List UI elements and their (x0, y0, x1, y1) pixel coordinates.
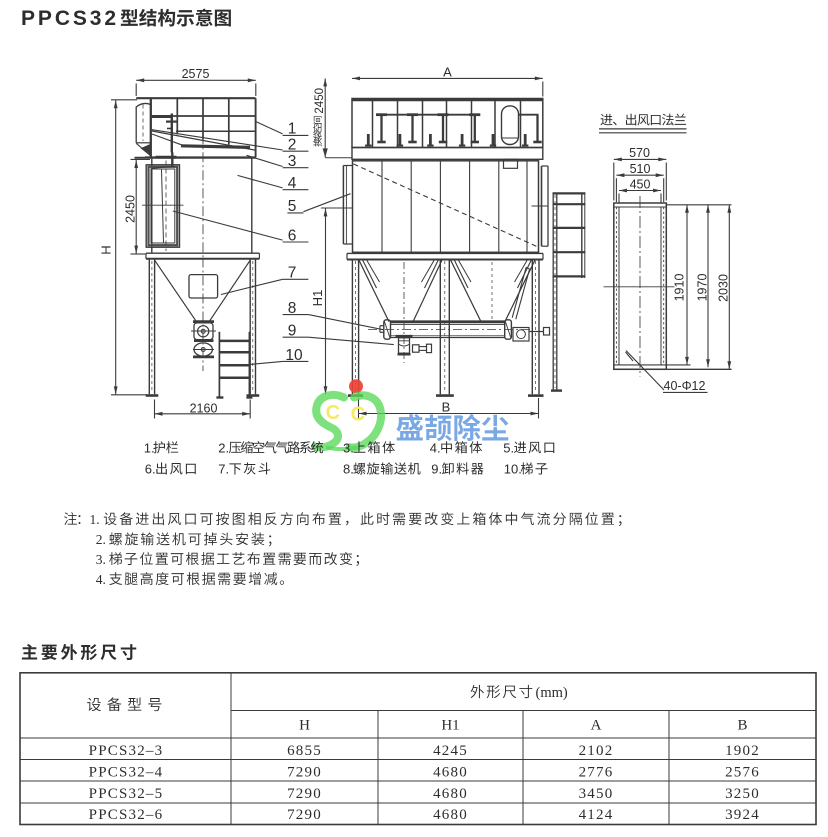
svg-text:A: A (443, 65, 452, 80)
svg-text:8.: 8. (343, 462, 354, 477)
svg-text:A: A (591, 718, 602, 734)
svg-text:1.: 1. (90, 512, 100, 527)
svg-text:B: B (442, 399, 451, 414)
svg-text:450: 450 (630, 178, 651, 192)
svg-text:B: B (737, 718, 747, 734)
svg-text:H1: H1 (310, 290, 325, 307)
svg-text:510: 510 (630, 162, 651, 176)
svg-text:4245: 4245 (433, 743, 468, 759)
svg-text:2575: 2575 (182, 67, 210, 81)
svg-text:PPCS32–5: PPCS32–5 (89, 786, 164, 802)
svg-text:PPCS32–3: PPCS32–3 (89, 743, 164, 759)
svg-text:2.: 2. (218, 440, 229, 455)
svg-text:4680: 4680 (433, 764, 468, 780)
svg-text:570: 570 (629, 146, 650, 160)
svg-text:9.: 9. (431, 462, 442, 477)
svg-text:7290: 7290 (287, 764, 322, 780)
svg-text:5.: 5. (503, 440, 514, 455)
svg-text:7290: 7290 (287, 807, 322, 823)
svg-text:2776: 2776 (579, 764, 614, 780)
svg-text:40-Φ12: 40-Φ12 (664, 379, 706, 393)
svg-text:H1: H1 (441, 718, 459, 734)
svg-text:2450: 2450 (314, 88, 326, 114)
svg-text:(mm): (mm) (536, 685, 568, 701)
svg-text:6855: 6855 (287, 743, 322, 759)
svg-text:4680: 4680 (433, 786, 468, 802)
svg-text:2576: 2576 (725, 764, 760, 780)
svg-text:C: C (326, 402, 340, 424)
svg-text:3924: 3924 (725, 807, 760, 823)
svg-text:2450: 2450 (123, 195, 137, 223)
svg-text:3250: 3250 (725, 786, 760, 802)
svg-text:1910: 1910 (672, 274, 686, 302)
svg-text:10.: 10. (504, 462, 522, 477)
svg-text:7290: 7290 (287, 786, 322, 802)
svg-text:1970: 1970 (695, 274, 709, 302)
svg-text:PPCS32–4: PPCS32–4 (89, 764, 164, 780)
svg-text:6.: 6. (145, 462, 156, 477)
svg-text:C: C (351, 404, 365, 426)
svg-text:2.: 2. (96, 532, 106, 547)
svg-text:1.: 1. (144, 440, 155, 455)
svg-text:1902: 1902 (725, 743, 760, 759)
svg-text:7.: 7. (218, 462, 229, 477)
svg-text:3.: 3. (96, 552, 106, 567)
svg-text:3.: 3. (343, 440, 354, 455)
svg-text:4680: 4680 (433, 807, 468, 823)
svg-text:4.: 4. (430, 440, 441, 455)
svg-text:4124: 4124 (579, 807, 614, 823)
svg-text:2102: 2102 (579, 743, 614, 759)
svg-text:3450: 3450 (579, 786, 614, 802)
svg-text:PPCS32: PPCS32 (21, 7, 119, 30)
svg-text:H: H (299, 718, 310, 734)
svg-text:H: H (99, 245, 114, 254)
svg-text:2030: 2030 (716, 274, 730, 302)
svg-text:4.: 4. (96, 572, 106, 587)
svg-text:PPCS32–6: PPCS32–6 (89, 807, 164, 823)
